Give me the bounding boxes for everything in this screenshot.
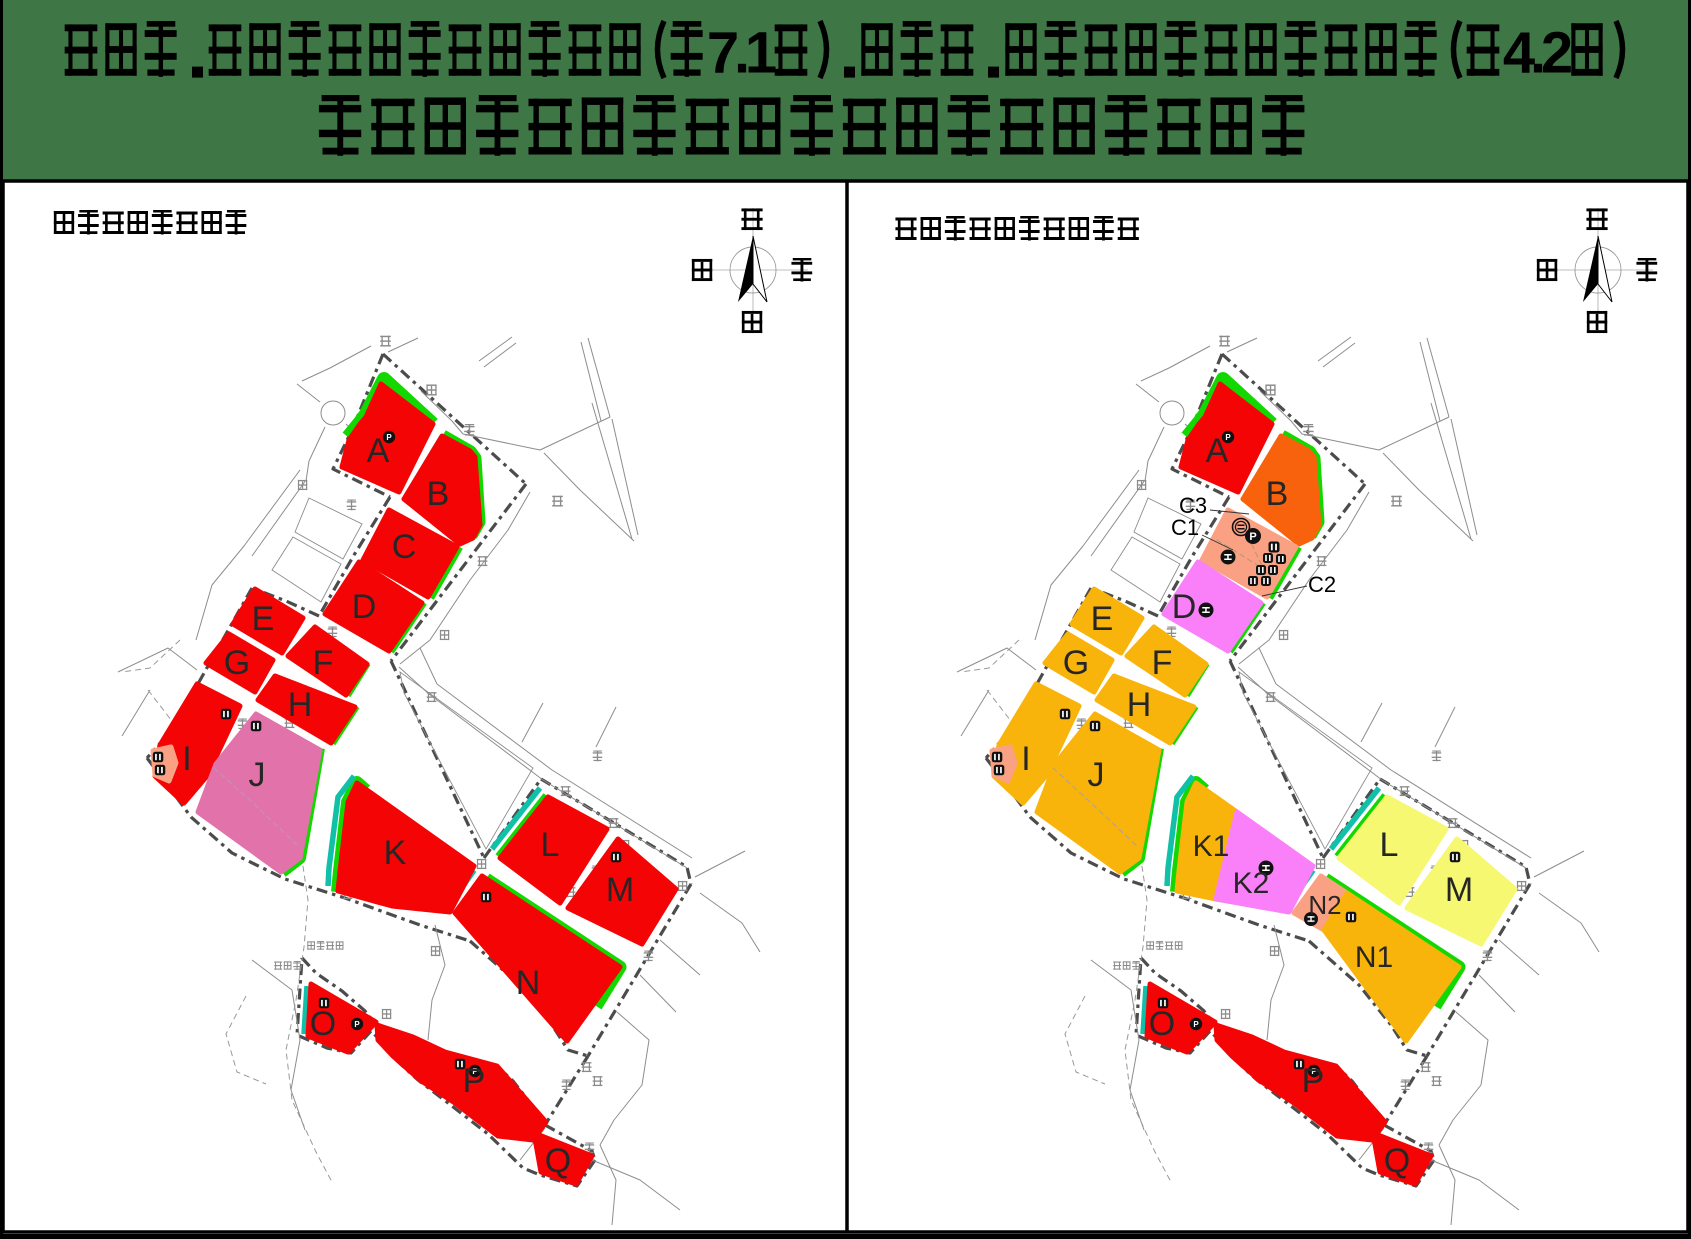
svg-text:J: J <box>249 756 266 794</box>
svg-text:P: P <box>463 1062 486 1100</box>
svg-text:N2: N2 <box>1308 890 1341 920</box>
svg-text:N: N <box>516 964 541 1002</box>
svg-text:I: I <box>182 740 191 778</box>
svg-text:K2: K2 <box>1233 867 1270 900</box>
svg-text:K1: K1 <box>1193 830 1230 863</box>
svg-text:H: H <box>1127 686 1152 724</box>
svg-text:2: 2 <box>1541 20 1573 85</box>
svg-text:F: F <box>313 644 334 682</box>
svg-text:E: E <box>1091 600 1114 638</box>
svg-text:K: K <box>384 834 407 872</box>
svg-text:J: J <box>1088 756 1105 794</box>
svg-text:L: L <box>541 826 560 864</box>
svg-text:I: I <box>1021 740 1030 778</box>
svg-text:P: P <box>354 1020 360 1029</box>
svg-text:H: H <box>288 686 313 724</box>
svg-text:O: O <box>310 1005 336 1043</box>
svg-text:M: M <box>1445 871 1473 909</box>
svg-text:C2: C2 <box>1308 572 1336 597</box>
svg-text:E: E <box>252 600 275 638</box>
svg-text:P: P <box>1302 1062 1325 1100</box>
svg-text:A: A <box>1206 432 1229 470</box>
svg-text:B: B <box>427 475 450 513</box>
svg-text:M: M <box>606 871 634 909</box>
svg-text:P: P <box>1193 1020 1199 1029</box>
svg-text:Q: Q <box>1384 1142 1410 1180</box>
svg-text:F: F <box>1152 644 1173 682</box>
svg-text:A: A <box>367 432 390 470</box>
svg-text:Q: Q <box>545 1142 571 1180</box>
svg-text:G: G <box>1063 644 1089 682</box>
svg-text:N1: N1 <box>1355 941 1393 974</box>
svg-text:C1: C1 <box>1171 515 1199 540</box>
svg-text:B: B <box>1266 475 1289 513</box>
svg-text:O: O <box>1149 1005 1175 1043</box>
svg-text:1: 1 <box>745 20 777 85</box>
svg-text:D: D <box>1172 588 1197 626</box>
svg-text:P: P <box>1249 531 1256 543</box>
svg-text:G: G <box>224 644 250 682</box>
svg-text:L: L <box>1380 826 1399 864</box>
svg-text:D: D <box>352 588 377 626</box>
svg-text:C: C <box>392 528 417 566</box>
